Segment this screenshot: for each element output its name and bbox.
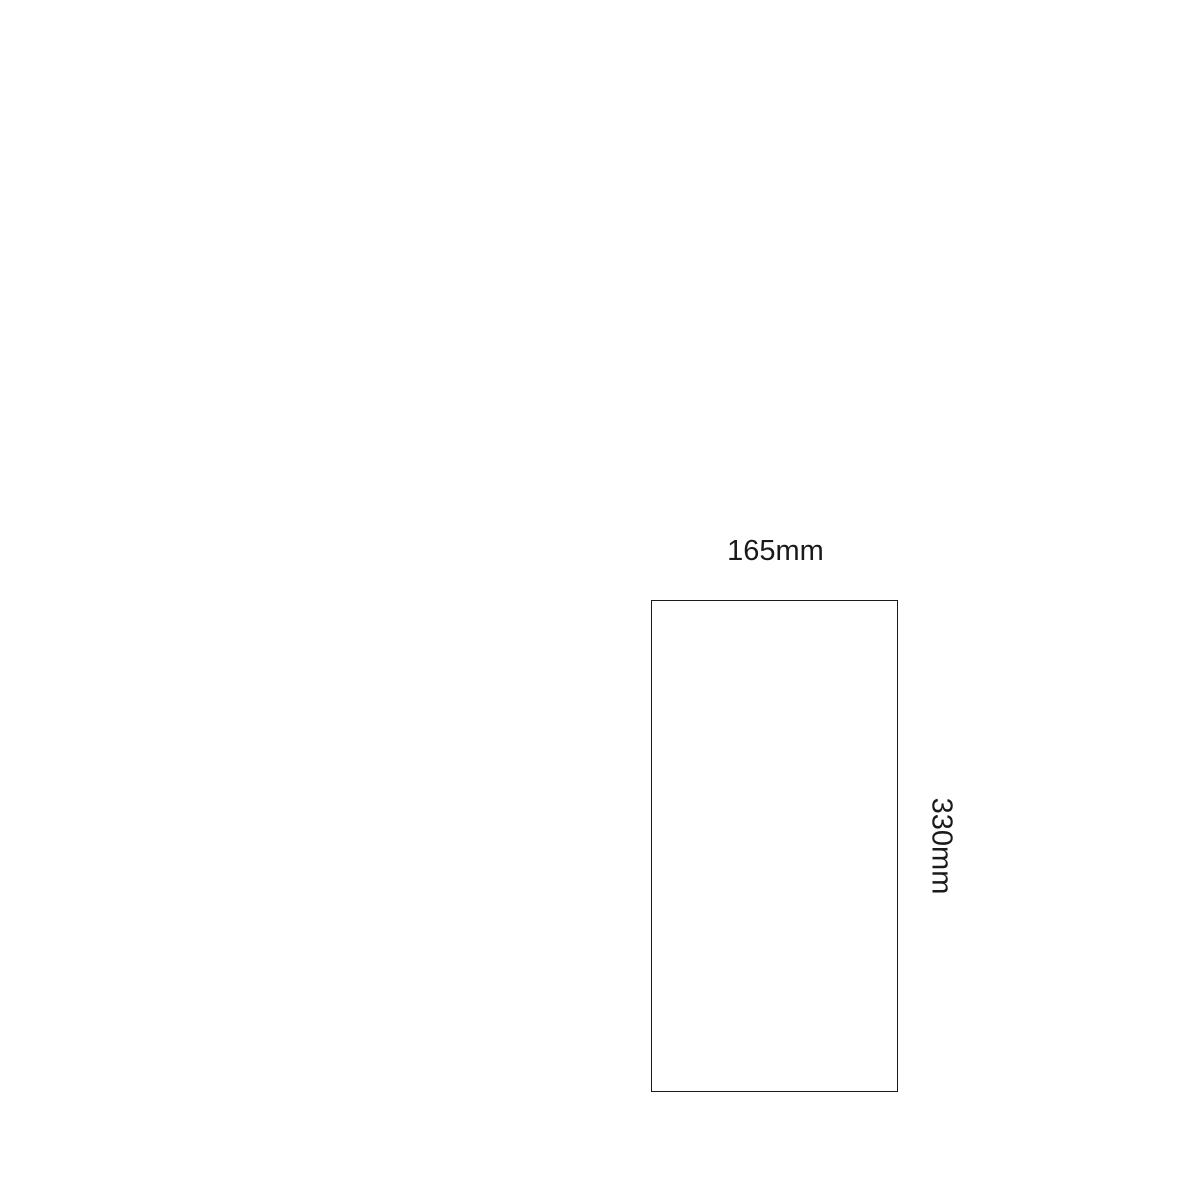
diagram-canvas: 165mm 330mm: [0, 0, 1200, 1200]
dimension-rectangle: [651, 600, 898, 1092]
width-dimension-label: 165mm: [651, 537, 900, 566]
height-dimension-label: 330mm: [927, 798, 956, 895]
